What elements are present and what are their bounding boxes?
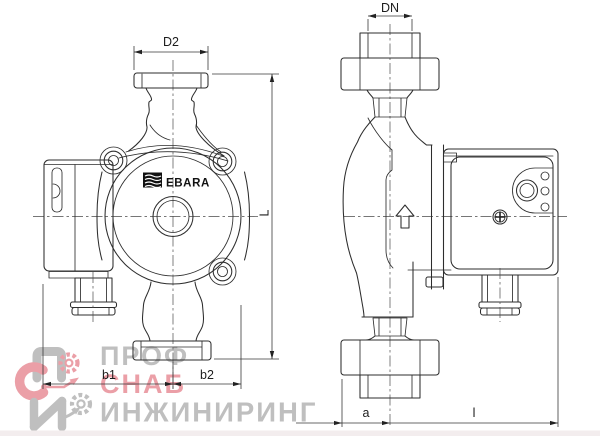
dim-a-l: a l <box>296 277 558 427</box>
dim-label-a: a <box>363 406 370 420</box>
brand-logo: EBARA <box>143 173 210 190</box>
front-terminal-box <box>44 160 113 278</box>
front-top-neck <box>119 88 228 161</box>
box-bottom-step <box>49 272 108 279</box>
mounting-ear-top-left <box>100 147 127 174</box>
side-view <box>341 24 567 428</box>
dim-label-b2: b2 <box>200 368 214 382</box>
side-capacitor <box>479 268 521 322</box>
pad-hole-1 <box>541 172 549 180</box>
brand-label: EBARA <box>166 178 210 190</box>
dim-label-dn: DN <box>381 1 399 15</box>
dim-label-l: l <box>473 406 476 420</box>
terminal-pad <box>513 168 554 213</box>
dim-label-d2: D2 <box>163 35 179 49</box>
front-top-union <box>134 73 208 88</box>
logo-letter-i <box>34 401 62 427</box>
pad-hole-3 <box>541 203 549 211</box>
watermark-line-1: ПРОФ <box>100 341 189 371</box>
watermark-logo-icon <box>20 352 90 428</box>
pump-dimension-drawing: ПРОФ СНАБ ИНЖИНИРИНГ <box>0 0 600 436</box>
mounting-ear-bottom-right <box>209 258 236 285</box>
watermark-line-3: ИНЖИНИРИНГ <box>100 397 317 428</box>
logo-letter-s <box>20 367 44 396</box>
dim-d2: D2 <box>134 35 208 70</box>
motor-clamp-band <box>426 145 457 289</box>
screw-icon <box>493 210 507 224</box>
drawing-canvas: ПРОФ СНАБ ИНЖИНИРИНГ <box>0 0 600 436</box>
box-slot <box>52 168 62 212</box>
dim-label-length: L <box>258 209 272 216</box>
mounting-ear-top-right <box>209 148 236 175</box>
bottom-band <box>0 431 600 436</box>
front-capacitor <box>71 272 117 322</box>
front-view: EBARA <box>33 60 258 390</box>
pad-hole-2 <box>541 187 549 195</box>
dim-length: L <box>212 74 279 359</box>
dim-label-b1: b1 <box>102 368 116 382</box>
